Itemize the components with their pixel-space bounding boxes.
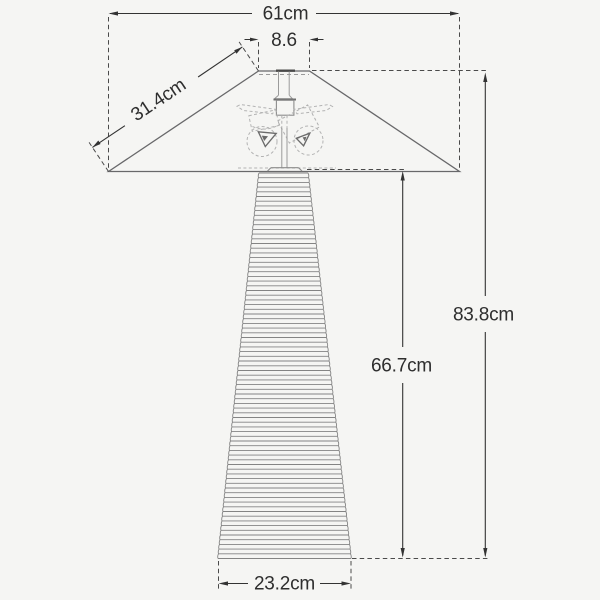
svg-text:23.2cm: 23.2cm <box>254 574 315 595</box>
svg-text:66.7cm: 66.7cm <box>371 356 432 377</box>
svg-text:8.6: 8.6 <box>271 30 297 51</box>
svg-text:61cm: 61cm <box>263 4 309 25</box>
svg-text:83.8cm: 83.8cm <box>453 305 514 326</box>
